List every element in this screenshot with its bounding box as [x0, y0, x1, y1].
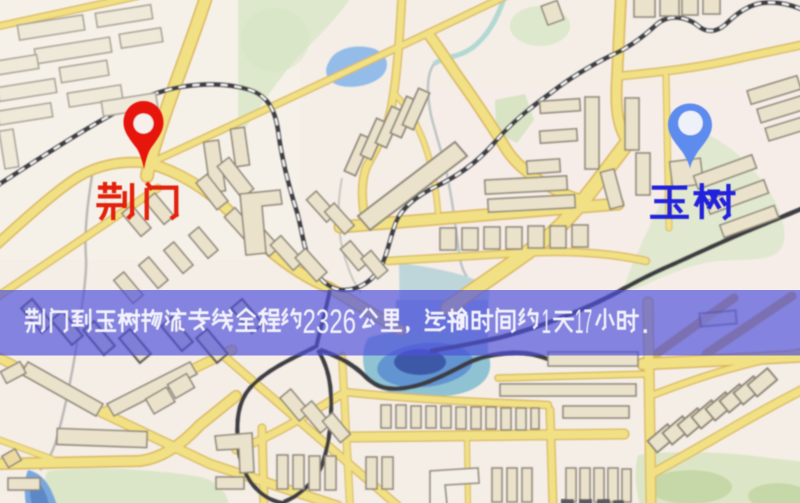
svg-text:.: .: [641, 303, 650, 341]
svg-text:2326: 2326: [303, 303, 357, 341]
svg-text:17: 17: [575, 303, 593, 341]
svg-text:1: 1: [542, 303, 552, 341]
